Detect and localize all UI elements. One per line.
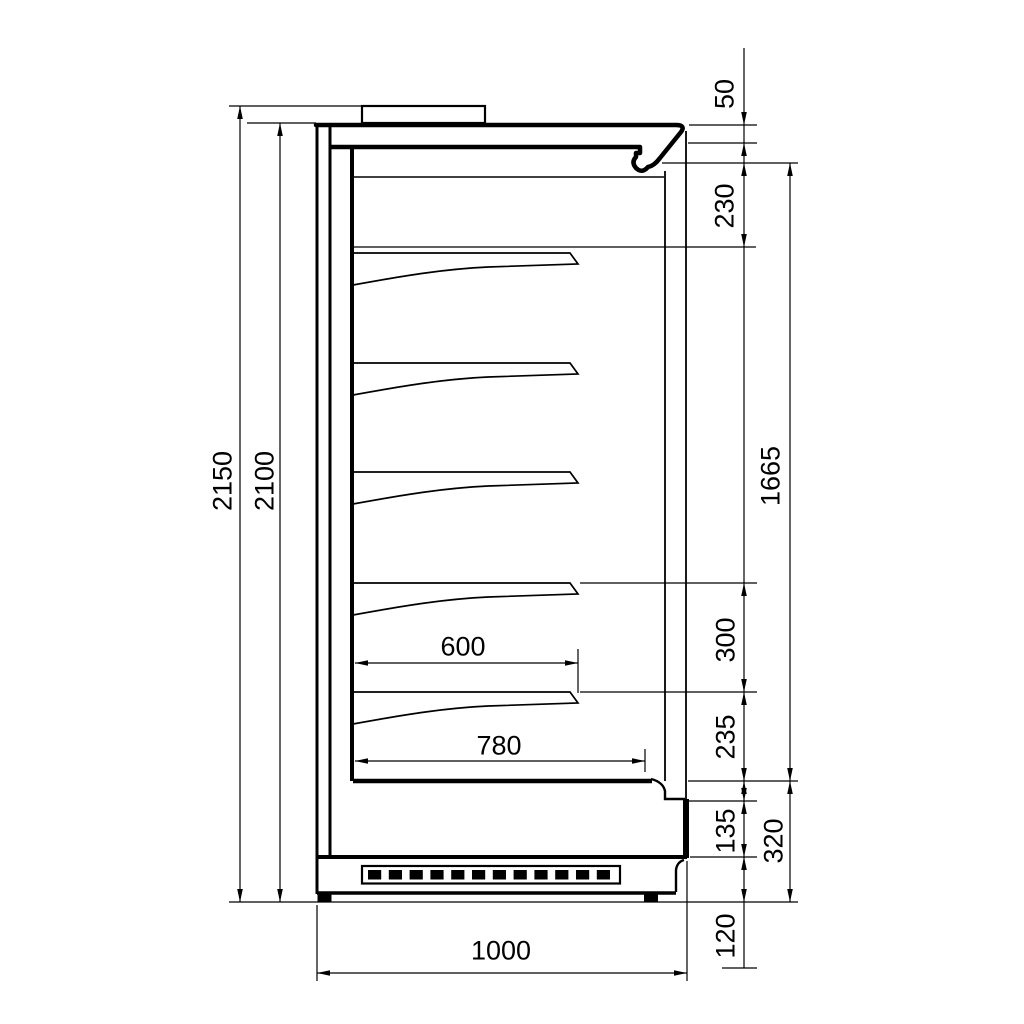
base-right-bevel xyxy=(676,860,684,892)
dim-label-top-section: 230 xyxy=(712,183,739,228)
vent-grille-slots xyxy=(368,870,610,880)
shelf xyxy=(353,583,578,615)
dim-label-base-section: 320 xyxy=(761,818,788,863)
dim-label-shelf-depth: 600 xyxy=(440,634,485,661)
dim-label-shelf-spacing: 300 xyxy=(713,617,740,662)
dim-label-overall-depth: 1000 xyxy=(471,938,531,965)
foot-left xyxy=(318,894,332,903)
technical-drawing-page: 2150 2100 50 230 1665 300 235 135 320 12… xyxy=(0,0,1024,1024)
dim-label-overall-height: 2150 xyxy=(210,451,237,511)
dim-label-cabinet-height: 2100 xyxy=(252,451,279,511)
arrowheads xyxy=(237,106,793,976)
shelf xyxy=(353,692,578,724)
dim-label-lower-panel: 135 xyxy=(713,808,740,853)
dim-label-canopy-front: 50 xyxy=(712,79,739,109)
dim-label-well-depth: 780 xyxy=(476,733,521,760)
shelf xyxy=(353,472,578,504)
top-box xyxy=(362,106,485,123)
section-drawing xyxy=(0,0,1024,1024)
shelf xyxy=(353,253,578,285)
dim-label-interior-front: 1665 xyxy=(758,446,785,506)
cabinet-structure xyxy=(316,106,756,903)
dimension-lines xyxy=(240,48,790,973)
foot-right xyxy=(644,894,658,903)
dim-label-bottom-shelf: 235 xyxy=(713,714,740,759)
canopy-profile xyxy=(316,125,683,171)
shelf xyxy=(353,363,578,395)
deck-front-step xyxy=(651,779,685,799)
dim-label-plinth: 120 xyxy=(713,913,740,958)
